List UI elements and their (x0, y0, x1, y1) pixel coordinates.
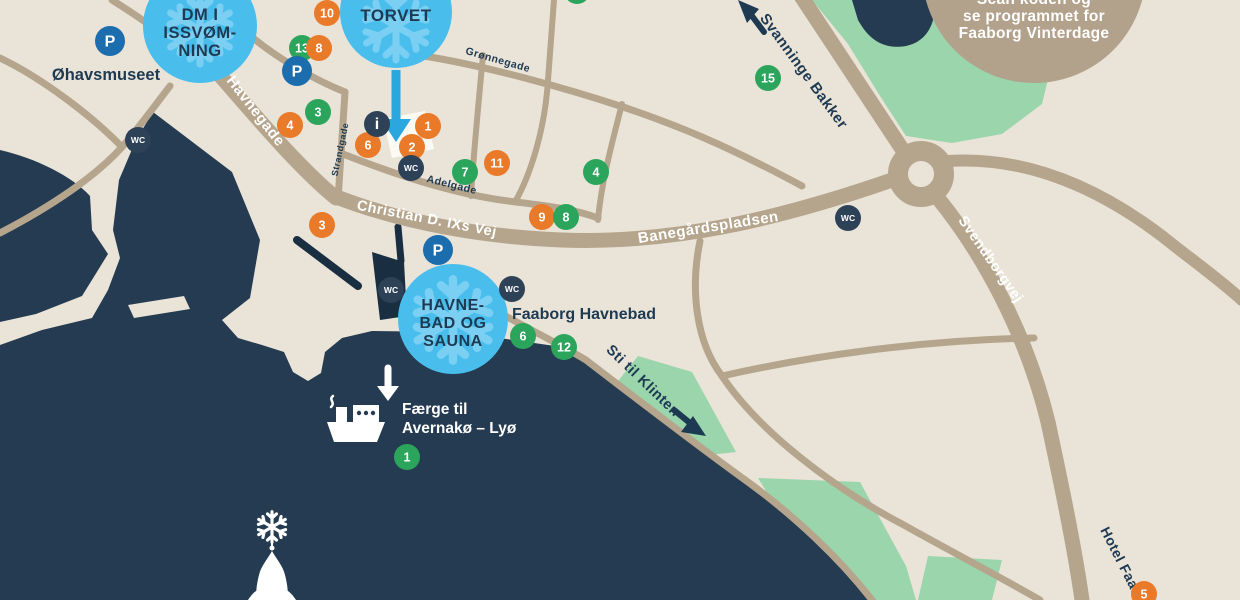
svg-text:WC: WC (841, 213, 855, 223)
svg-text:P: P (105, 34, 116, 51)
svg-text:WC: WC (384, 285, 398, 295)
poi-marker-green-12: 12 (551, 334, 577, 360)
badge-havnebad-line3: SAUNA (423, 333, 482, 350)
svg-text:11: 11 (490, 157, 503, 171)
svg-text:5: 5 (1141, 588, 1148, 600)
badge-havnebad-line1: HAVNE- (421, 297, 484, 314)
svg-text:9: 9 (539, 211, 546, 225)
svg-text:i: i (375, 116, 379, 133)
parking-icon: P (423, 235, 453, 265)
svg-text:15: 15 (761, 72, 775, 86)
poi-marker-green-15: 15 (755, 65, 781, 91)
svg-text:WC: WC (505, 284, 519, 294)
label-faaborg-havnebad: Faaborg Havnebad (512, 306, 656, 323)
svg-text:P: P (433, 243, 444, 260)
ferry-funnel (336, 407, 347, 422)
wc-icon: WC (499, 276, 525, 302)
promo-line2: se programmet for (963, 8, 1105, 25)
svg-text:7: 7 (462, 166, 469, 180)
svg-text:4: 4 (593, 166, 600, 180)
badge-dm-line1: DM I (182, 6, 219, 24)
svg-text:8: 8 (316, 42, 323, 56)
poi-marker-orange-3: 3 (309, 212, 335, 238)
svg-text:1: 1 (404, 451, 411, 465)
poi-marker-green-4: 4 (583, 159, 609, 185)
parking-icon: P (95, 26, 125, 56)
ferry-hull (327, 422, 385, 442)
wc-icon: WC (378, 277, 404, 303)
badge-dm-line3: NING (178, 42, 221, 60)
green-area-coast-3 (918, 556, 1002, 600)
wc-icon: WC (398, 155, 424, 181)
svg-text:WC: WC (404, 163, 418, 173)
poi-marker-green-3: 3 (305, 99, 331, 125)
svg-text:P: P (292, 64, 303, 81)
badge-havnebad-sauna: HAVNE- BAD OG SAUNA (398, 264, 508, 374)
faaborg-vinterdage-map: HavnegadeChristian D. IXs VejBanegårdspl… (0, 0, 1240, 600)
ferry-smoke (331, 396, 333, 407)
badge-havnebad-line2: BAD OG (420, 315, 487, 332)
badge-torvet-line1: TORVET (360, 6, 431, 25)
label-ohavsmuseet: Øhavsmuseet (52, 66, 161, 84)
svg-text:3: 3 (315, 106, 322, 120)
poi-marker-orange-8: 8 (306, 35, 332, 61)
svg-text:8: 8 (563, 211, 570, 225)
poi-marker-green-8: 8 (553, 204, 579, 230)
svg-text:6: 6 (520, 330, 527, 344)
poi-marker-orange-11: 11 (484, 150, 510, 176)
svg-text:12: 12 (557, 341, 571, 355)
svg-text:6: 6 (365, 139, 372, 153)
poi-marker-orange-10: 10 (314, 0, 340, 26)
svg-text:WC: WC (131, 135, 145, 145)
poi-marker-green-1: 1 (394, 444, 420, 470)
parking-icon: P (282, 56, 312, 86)
poi-marker-green-7: 7 (452, 159, 478, 185)
promo-line3: Faaborg Vinterdage (959, 25, 1110, 42)
svg-text:10: 10 (320, 7, 334, 21)
wc-icon: WC (125, 127, 151, 153)
poi-marker-orange-4: 4 (277, 112, 303, 138)
info-icon: i (364, 111, 390, 137)
poi-marker-orange-1: 1 (415, 113, 441, 139)
label-ferry-line2: Avernakø – Lyø (402, 420, 517, 437)
svg-text:1: 1 (425, 120, 432, 134)
poi-marker-green-6: 6 (510, 323, 536, 349)
svg-text:3: 3 (319, 219, 326, 233)
poi-marker-orange-9: 9 (529, 204, 555, 230)
promo-line1: Scan koden og (977, 0, 1091, 8)
svg-text:2: 2 (409, 141, 416, 155)
badge-dm-line2: ISSVØM- (163, 24, 236, 42)
label-ferry-line1: Færge til (402, 401, 467, 418)
wc-icon: WC (835, 205, 861, 231)
svg-text:4: 4 (287, 119, 294, 133)
breakwater-line-2 (398, 227, 401, 261)
